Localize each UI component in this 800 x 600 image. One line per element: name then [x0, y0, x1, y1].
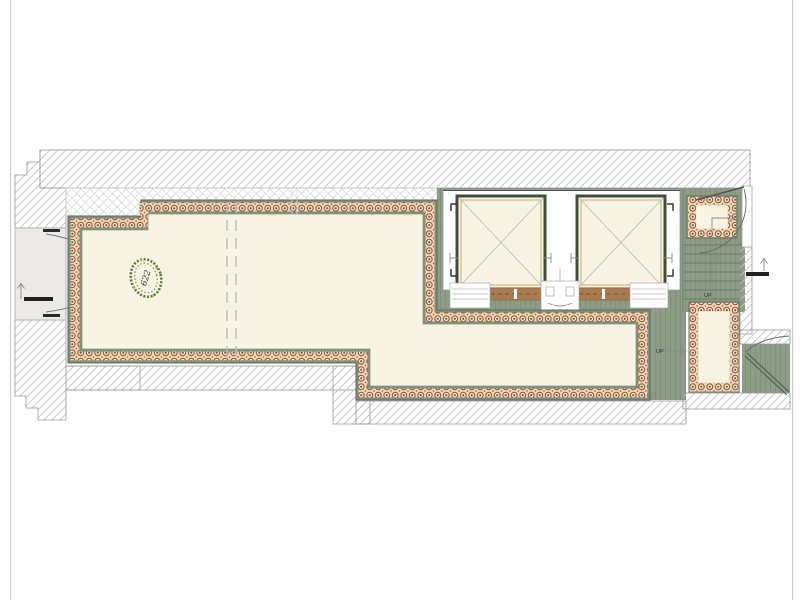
page-frame-right: [792, 0, 793, 600]
door-jamb-bottom: [43, 314, 60, 317]
elevator-door-sill-2: [578, 288, 630, 300]
vestibule-floor: [15, 228, 66, 320]
elevator-jamb-right: [630, 283, 668, 308]
elevator-jamb-left: [450, 283, 490, 308]
page-frame-left: [10, 0, 11, 600]
door-frame-jamb: [742, 186, 752, 247]
top-wall: [40, 150, 750, 188]
elevator-shaft-1: [457, 196, 545, 289]
plan-canvas: 622 UP UP: [0, 0, 800, 600]
bottom-wall-right: [356, 401, 686, 424]
door-jamb-top: [43, 229, 60, 232]
elevator-door-sill-1: [490, 288, 542, 300]
bottom-wall-stair: [683, 393, 790, 409]
up-label-landing: UP: [656, 349, 664, 355]
up-label-stair: UP: [704, 293, 712, 299]
tile-mat-lower: [689, 302, 739, 392]
bottom-wall-left: [66, 366, 356, 390]
elevator-shaft-2: [577, 196, 665, 289]
stair-right-wall: [740, 247, 752, 334]
floor-plan-page: 622 UP UP: [0, 0, 800, 600]
